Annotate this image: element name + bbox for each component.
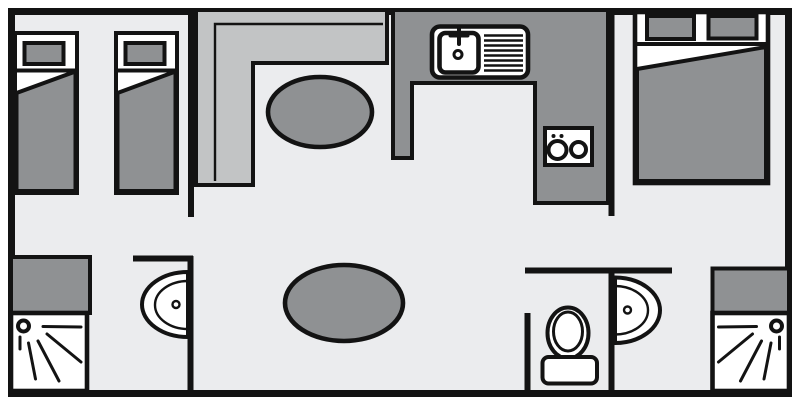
spray-line: [719, 327, 757, 328]
toilet-tank: [543, 357, 598, 384]
pillow: [709, 16, 757, 39]
oval-table-living: [268, 77, 372, 147]
pillow: [126, 43, 165, 64]
pillow: [25, 43, 64, 64]
single-bed-1: [15, 33, 77, 193]
single-bed-2: [116, 33, 177, 193]
storage-cabinet: [713, 269, 790, 314]
oval-table-lounge: [285, 265, 403, 341]
basin-drain: [173, 301, 180, 308]
blanket: [637, 47, 766, 181]
storage-cabinet: [11, 257, 90, 313]
zone-double-bedroom: [635, 12, 768, 183]
burner-large-icon: [549, 141, 567, 159]
drain-hole: [454, 51, 462, 59]
zone-shower-room-right: [713, 269, 790, 392]
knob-dot: [560, 134, 564, 138]
shower-head-icon: [771, 321, 782, 332]
shower-head-icon: [18, 321, 29, 332]
floor-plan-canvas: [0, 0, 800, 403]
sink-unit: [432, 27, 528, 78]
stove-unit: [545, 128, 592, 165]
burner-small-icon: [571, 142, 586, 157]
pillow: [647, 16, 694, 39]
blanket: [17, 72, 76, 192]
spray-line: [43, 327, 81, 328]
floor-plan-page: [0, 0, 800, 403]
basin-drain: [624, 307, 631, 314]
knob-dot: [552, 134, 556, 138]
blanket: [118, 72, 176, 192]
